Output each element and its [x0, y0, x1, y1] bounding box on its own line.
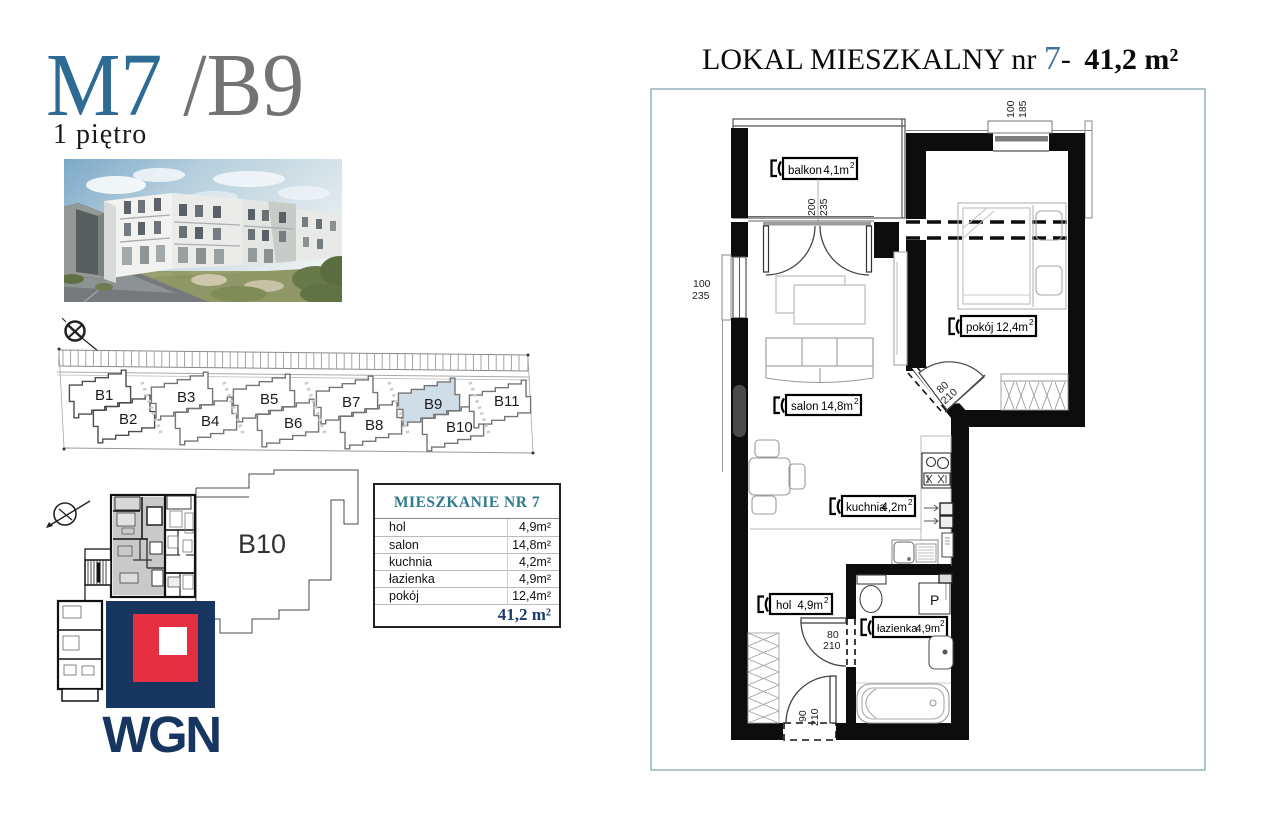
- svg-text:2: 2: [850, 161, 855, 170]
- svg-text:P: P: [930, 592, 939, 608]
- svg-text:B7: B7: [342, 394, 360, 411]
- svg-text:hol: hol: [776, 600, 791, 612]
- svg-text:185: 185: [1017, 100, 1029, 118]
- svg-text:200: 200: [806, 198, 818, 216]
- svg-text:2: 2: [824, 596, 829, 605]
- svg-text:4,1m: 4,1m: [823, 165, 849, 177]
- svg-text:2: 2: [940, 619, 945, 628]
- svg-text:B4: B4: [201, 413, 219, 430]
- svg-text:4,9m: 4,9m: [916, 623, 940, 635]
- svg-text:B5: B5: [260, 391, 278, 408]
- svg-text:2: 2: [1029, 318, 1034, 327]
- svg-text:4,9m: 4,9m: [797, 600, 823, 612]
- svg-text:pokój: pokój: [966, 322, 994, 334]
- svg-text:B10: B10: [238, 529, 286, 559]
- svg-text:210: 210: [809, 708, 821, 726]
- svg-text:B1: B1: [95, 387, 113, 404]
- svg-text:235: 235: [692, 290, 710, 302]
- svg-text:4,2m: 4,2m: [881, 502, 907, 514]
- svg-text:B8: B8: [365, 417, 383, 434]
- svg-text:2: 2: [854, 397, 859, 406]
- svg-text:salon: salon: [791, 401, 819, 413]
- svg-text:balkon: balkon: [788, 165, 822, 177]
- svg-text:B10: B10: [446, 419, 473, 436]
- svg-text:90: 90: [797, 710, 809, 722]
- svg-text:B11: B11: [494, 393, 520, 410]
- svg-text:B3: B3: [177, 389, 195, 406]
- svg-text:kuchnia: kuchnia: [846, 502, 886, 514]
- svg-text:12,4m: 12,4m: [996, 322, 1028, 334]
- svg-text:B2: B2: [119, 411, 137, 428]
- svg-text:210: 210: [823, 640, 841, 652]
- svg-text:235: 235: [818, 198, 830, 216]
- svg-text:łazienka: łazienka: [877, 623, 918, 635]
- svg-text:100: 100: [1005, 100, 1017, 118]
- svg-text:14,8m: 14,8m: [821, 401, 853, 413]
- svg-text:B6: B6: [284, 415, 302, 432]
- svg-text:B9: B9: [424, 396, 442, 413]
- svg-text:100: 100: [693, 278, 711, 290]
- svg-text:2: 2: [908, 498, 913, 507]
